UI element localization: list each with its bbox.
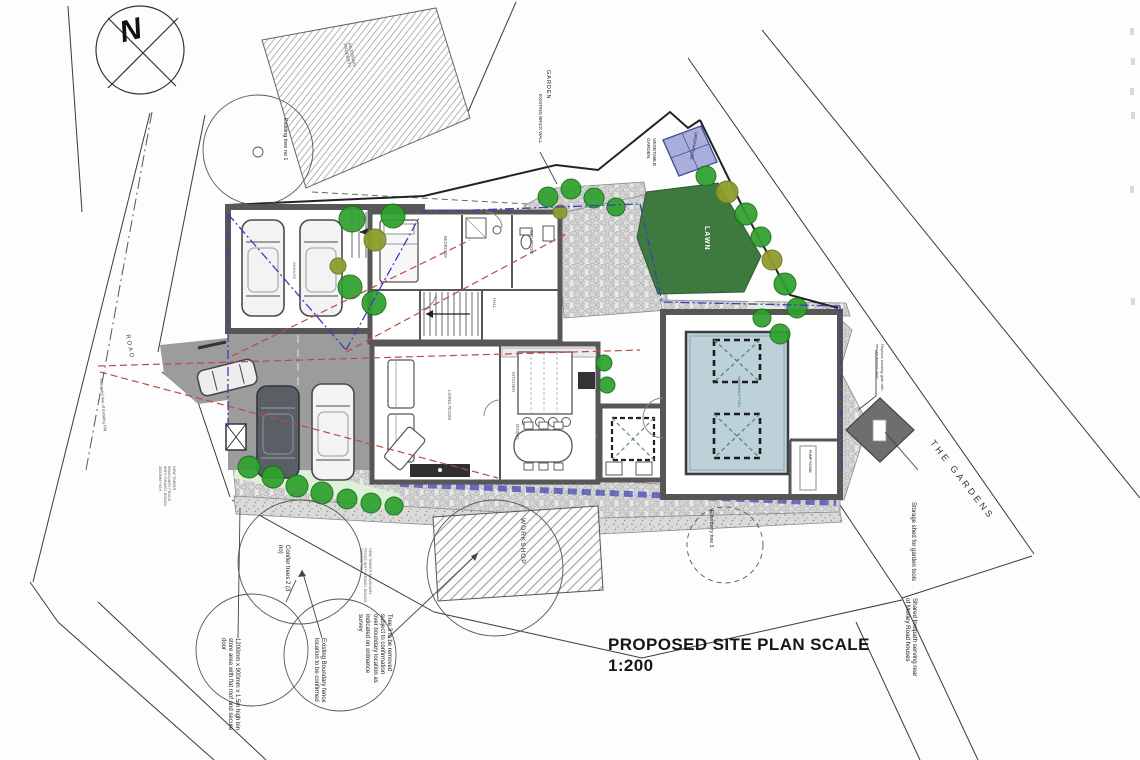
label-pump-room: PUMP ROOM [808,450,812,490]
drawing-title-line2: 1:200 [608,655,870,676]
label-replace-gate: Replace existing gate with secure access… [874,344,884,398]
drawing-title-line1: PROPOSED SITE PLAN SCALE [608,634,870,655]
label-garden: GARDEN [544,70,551,104]
label-swimming-pool: SWIMMING POOL [736,376,741,416]
label-fence-note-left: NEW TIMBER BOUNDARY FENCE WITH GRAVEL BO… [158,466,176,508]
label-existing-brick-wall: EXISTING BRICK WALL [538,94,543,146]
label-tree3-note: Tree 3 to be removed subject to confirma… [356,614,392,686]
label-conifer-trees: Conifer trees 2 (3 no) [276,545,290,595]
label-bathroom: BATHROOM [529,230,534,274]
label-existing-tree-1: Existing tree no 1 [281,118,288,172]
label-living-room: LIVING ROOM [447,390,452,440]
label-bedroom: BEDROOM [443,236,448,280]
lawn-area [637,183,761,294]
label-storage-shed: Storage shed for garden tools [909,502,916,584]
label-hall: HALL [492,298,497,326]
label-existing-boundary-note: Existing Boundary fence location to be c… [312,638,326,718]
label-garage: GARAGE [291,262,296,302]
label-fence-note-right: NEW TIMBER BOUNDARY FENCE WITH GRAVEL BO… [358,548,372,604]
site-plan-drawing [0,0,1140,760]
label-shared-footpath: Shared footpath serving rear of Morley R… [903,598,918,678]
garden-room [600,406,666,480]
drawing-title: PROPOSED SITE PLAN SCALE 1:200 [608,634,870,677]
label-vegetable-garden: VEGETABLE GARDEN [645,138,657,182]
scan-artifacts [1130,28,1135,305]
label-kitchen: KITCHEN [511,372,516,412]
north-arrow [96,6,184,94]
label-bin-store-note: 1200mm x 900mm x 1.5m high bin store are… [218,638,240,738]
label-lawn: LAWN [702,226,710,260]
label-workshop: WORKSHOP [518,518,526,592]
site-plan-page: N ADJOINING PROPERTY GARDEN EXISTING BRI… [0,0,1140,760]
adjoining-property-building [262,8,470,188]
label-elderberry-tree: Elderberry tree 3 [708,510,714,552]
label-dining: DINING [515,424,520,458]
